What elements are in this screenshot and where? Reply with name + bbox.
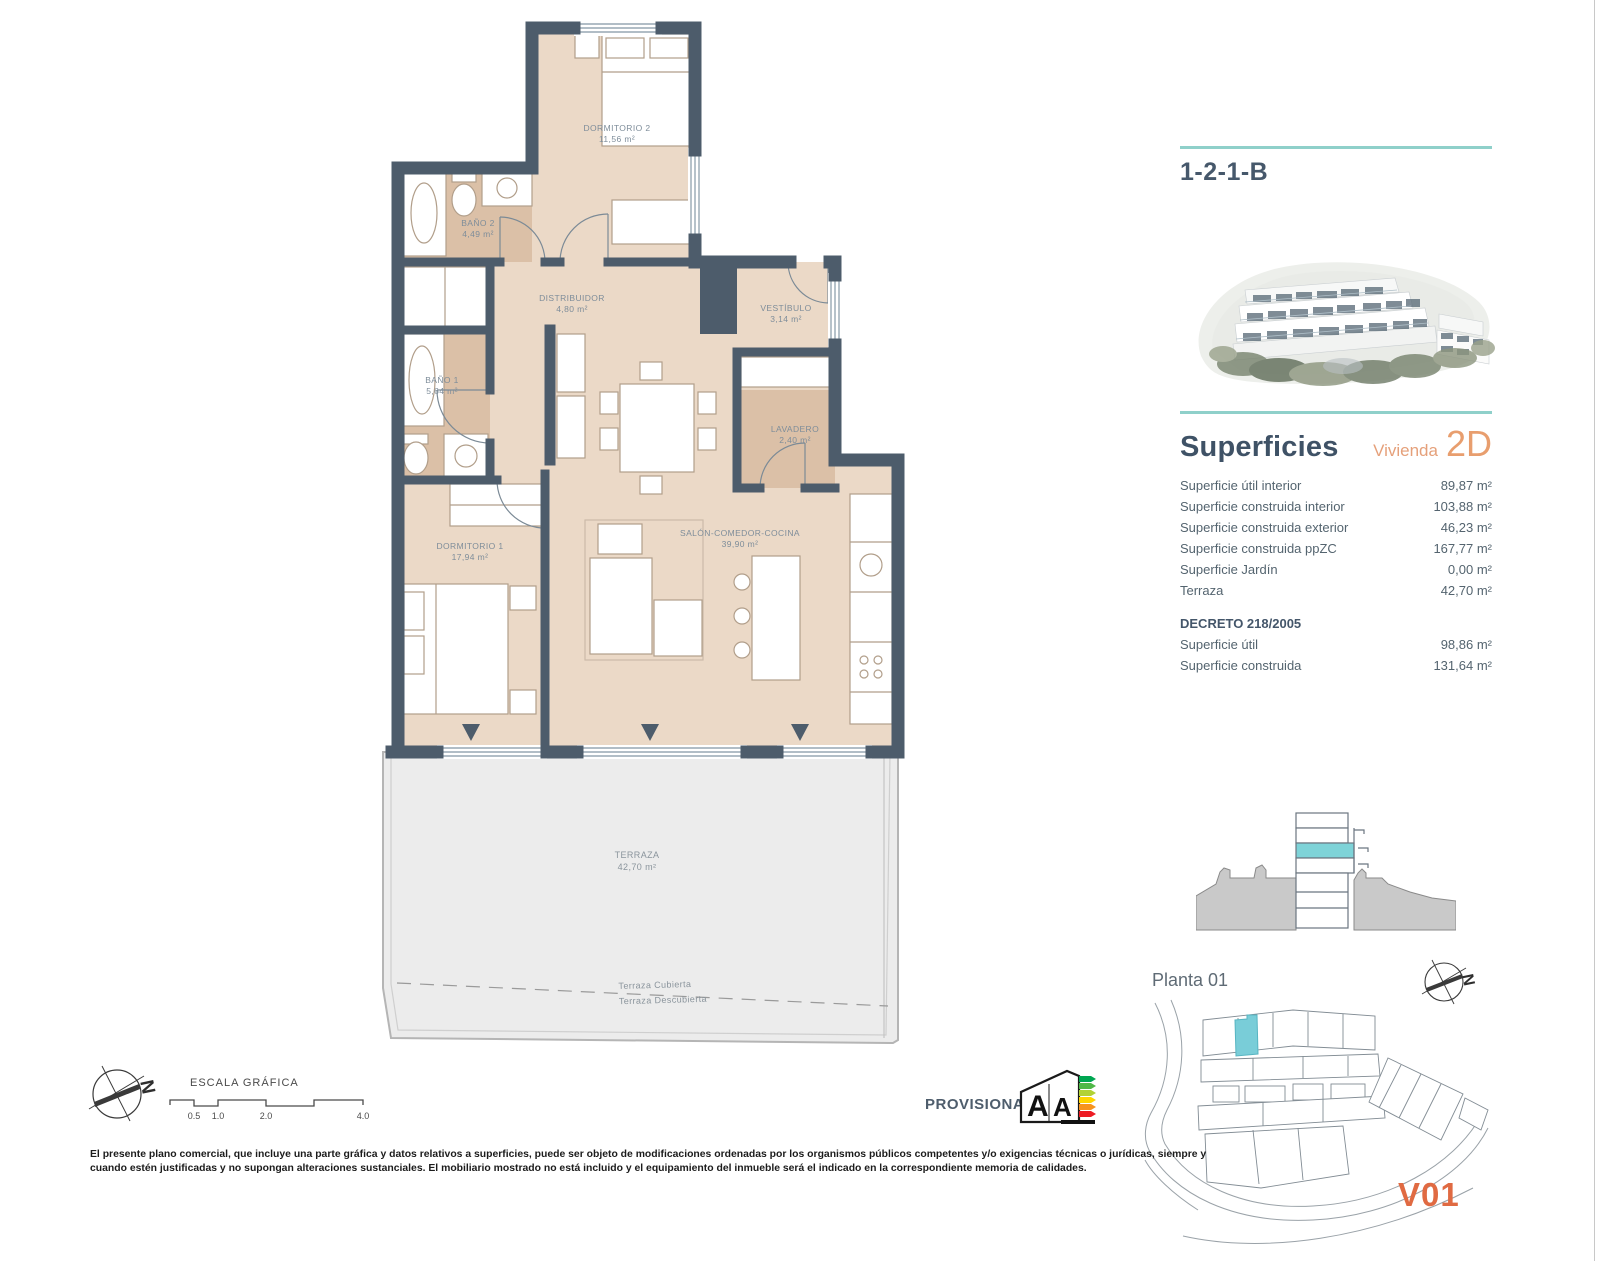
room-label-vestibulo: VESTÍBULO xyxy=(760,303,811,313)
superficie-row: Superficie construida interior103,88 m² xyxy=(1180,496,1492,517)
row-value: 167,77 m² xyxy=(1433,538,1492,559)
superficies-panel: Superficies Vivienda2D Superficie útil i… xyxy=(1180,411,1492,676)
energy-letter-right: A xyxy=(1053,1092,1072,1122)
scale-tick: 4.0 xyxy=(357,1111,370,1121)
room-label-bano2: BAÑO 2 xyxy=(461,218,495,228)
disclaimer-text: El presente plano comercial, que incluye… xyxy=(90,1148,1206,1176)
room-area-vestibulo: 3,14 m² xyxy=(770,314,802,324)
superficie-row: Superficie útil98,86 m² xyxy=(1180,634,1492,655)
row-value: 89,87 m² xyxy=(1441,475,1492,496)
row-value: 0,00 m² xyxy=(1448,559,1492,580)
room-area-bano1: 5,64 m² xyxy=(426,386,458,396)
room-area-distribuidor: 4,80 m² xyxy=(556,304,588,314)
scale-bar xyxy=(170,1100,363,1106)
block-code-label: V01 xyxy=(1398,1176,1460,1214)
room-label-distribuidor: DISTRIBUIDOR xyxy=(539,293,605,303)
room-area-lavadero: 2,40 m² xyxy=(779,435,811,445)
building-section-diagram xyxy=(1196,780,1456,932)
scale-tick: 0.5 xyxy=(188,1111,201,1121)
room-area-dormitorio1: 17,94 m² xyxy=(452,552,489,562)
energy-rating-icon: A A xyxy=(1015,1066,1101,1132)
row-label: Superficie útil xyxy=(1180,634,1258,655)
room-area-terraza: 42,70 m² xyxy=(618,862,657,872)
decreto-rows: Superficie útil98,86 m² Superficie const… xyxy=(1180,634,1492,676)
unit-code-title: 1-2-1-B xyxy=(1180,158,1268,187)
disclaimer-line-1: El presente plano comercial, que incluye… xyxy=(90,1148,1206,1162)
room-label-dormitorio2: DORMITORIO 2 xyxy=(584,123,651,133)
page-edge-line xyxy=(1594,0,1595,1261)
scale-tick: 2.0 xyxy=(260,1111,273,1121)
room-area-bano2: 4,49 m² xyxy=(462,229,494,239)
row-value: 42,70 m² xyxy=(1441,580,1492,601)
row-label: Superficie Jardín xyxy=(1180,559,1278,580)
superficie-row: Superficie construida exterior46,23 m² xyxy=(1180,517,1492,538)
row-label: Superficie construida interior xyxy=(1180,496,1345,517)
row-value: 103,88 m² xyxy=(1433,496,1492,517)
highlighted-floor xyxy=(1296,843,1354,858)
room-label-dormitorio1: DORMITORIO 1 xyxy=(437,541,504,551)
decreto-heading: DECRETO 218/2005 xyxy=(1180,613,1492,634)
row-value: 131,64 m² xyxy=(1433,655,1492,676)
room-area-salon: 39,90 m² xyxy=(722,539,759,549)
floorplan-sheet: DORMITORIO 2 11,56 m² BAÑO 2 4,49 m² DIS… xyxy=(0,0,1600,1261)
building-render-image xyxy=(1183,238,1503,396)
north-compass-icon: N xyxy=(89,1066,159,1121)
superficies-heading: Superficies xyxy=(1180,431,1339,464)
row-label: Superficie construida ppZC xyxy=(1180,538,1337,559)
scale-tick: 1.0 xyxy=(212,1111,225,1121)
room-label-terraza: TERRAZA xyxy=(615,850,660,860)
vivienda-code: 2D xyxy=(1446,423,1492,464)
row-label: Superficie útil interior xyxy=(1180,475,1301,496)
planta-label: Planta 01 xyxy=(1152,970,1228,991)
disclaimer-line-2: cuando estén justificadas y no supongan … xyxy=(90,1162,1206,1176)
superficie-row: Superficie Jardín0,00 m² xyxy=(1180,559,1492,580)
room-label-bano1: BAÑO 1 xyxy=(425,375,459,385)
compass-letter: N xyxy=(135,1078,158,1096)
superficie-row: Superficie útil interior89,87 m² xyxy=(1180,475,1492,496)
compass-letter: N xyxy=(1458,973,1477,988)
superficies-rows: Superficie útil interior89,87 m² Superfi… xyxy=(1180,475,1492,601)
room-label-salon: SALÓN-COMEDOR-COCINA xyxy=(680,528,800,538)
superficies-accent-rule xyxy=(1180,411,1492,414)
room-area-dormitorio2: 11,56 m² xyxy=(599,134,635,144)
superficie-row: Terraza42,70 m² xyxy=(1180,580,1492,601)
row-label: Terraza xyxy=(1180,580,1223,601)
vivienda-tag: Vivienda2D xyxy=(1373,423,1492,465)
energy-letter-left: A xyxy=(1027,1090,1049,1123)
superficie-row: Superficie construida131,64 m² xyxy=(1180,655,1492,676)
row-label: Superficie construida exterior xyxy=(1180,517,1348,538)
superficie-row: Superficie construida ppZC167,77 m² xyxy=(1180,538,1492,559)
room-label-lavadero: LAVADERO xyxy=(771,424,819,434)
title-accent-rule xyxy=(1180,146,1492,149)
highlighted-unit xyxy=(1235,1015,1258,1056)
scale-title: ESCALA GRÁFICA xyxy=(190,1076,299,1089)
row-value: 98,86 m² xyxy=(1441,634,1492,655)
scale-and-compass: N ESCALA GRÁFICA 0.5 1.0 2.0 4.0 xyxy=(80,1050,410,1140)
energy-scale-arrows xyxy=(1079,1076,1096,1117)
vivienda-label: Vivienda xyxy=(1373,441,1438,460)
terrace-covered-label: Terraza Cubierta xyxy=(618,979,691,991)
row-value: 46,23 m² xyxy=(1441,517,1492,538)
row-label: Superficie construida xyxy=(1180,655,1301,676)
